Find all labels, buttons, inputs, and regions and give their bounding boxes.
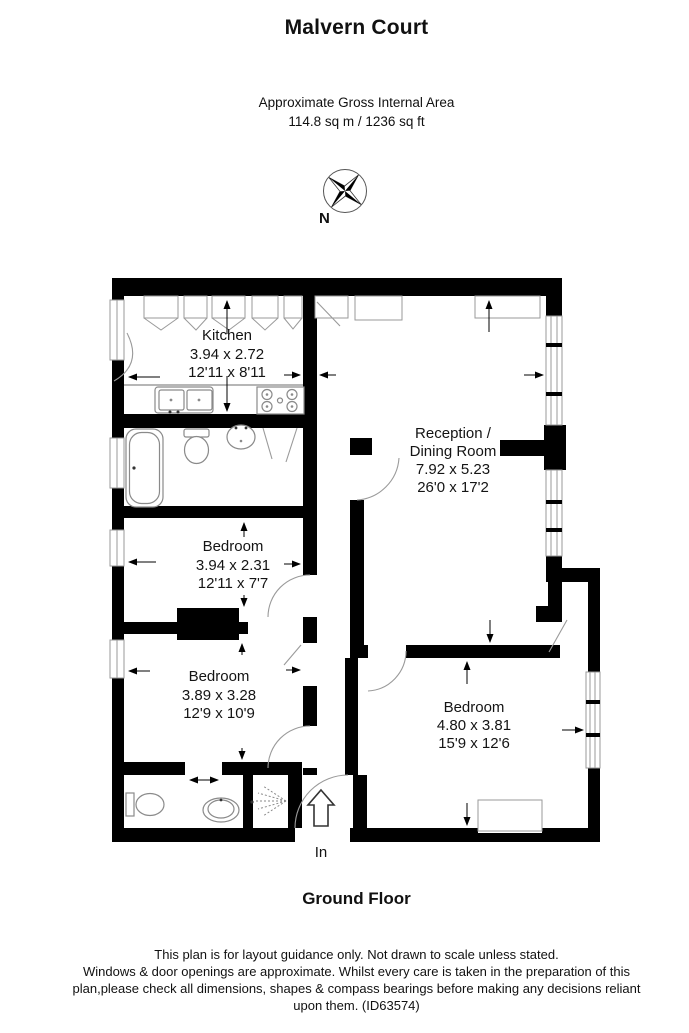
shower-room-fixtures (126, 786, 286, 822)
kitchen-fixtures (124, 385, 304, 414)
bedroom2-niche-leaf (284, 645, 301, 665)
toilet (185, 437, 209, 464)
svg-text:Bedroom: Bedroom (189, 668, 250, 685)
svg-text:4.80 x 3.81: 4.80 x 3.81 (437, 717, 511, 734)
bedroom3-window (586, 672, 600, 768)
reception-door-arc (357, 458, 399, 500)
svg-text:3.89 x 3.28: 3.89 x 3.28 (182, 687, 256, 704)
walls (112, 278, 600, 842)
svg-text:Bedroom: Bedroom (444, 699, 505, 716)
toilet-cistern (184, 429, 209, 437)
entry-label: In (315, 844, 328, 861)
toilet2-cistern (126, 793, 134, 816)
bathroom-fixtures (126, 425, 255, 507)
svg-text:3.94 x 2.72: 3.94 x 2.72 (190, 346, 264, 363)
disclaimer-rest: Windows & door openings are approximate.… (57, 963, 657, 1014)
svg-text:12'11 x 8'11: 12'11 x 8'11 (188, 364, 266, 381)
svg-text:Kitchen: Kitchen (202, 327, 252, 344)
svg-text:12'11 x 7'7: 12'11 x 7'7 (198, 575, 269, 592)
svg-text:12'9 x 10'9: 12'9 x 10'9 (183, 705, 255, 722)
bathroom-door-leaf2 (286, 428, 297, 462)
svg-text:26'0 x 17'2: 26'0 x 17'2 (417, 479, 489, 496)
svg-text:15'9 x 12'6: 15'9 x 12'6 (438, 735, 510, 752)
chimney-breast (177, 608, 239, 640)
svg-text:7.92 x 5.23: 7.92 x 5.23 (416, 461, 490, 478)
toilet2 (136, 794, 164, 816)
svg-text:Reception /: Reception / (415, 425, 492, 442)
disclaimer: This plan is for layout guidance only. N… (24, 946, 689, 1014)
basin (227, 425, 255, 449)
compass-north-label: N (319, 210, 330, 227)
bedroom1-door-arc (268, 575, 310, 617)
entry-arrow-icon (308, 790, 334, 826)
bedroom3-door-arc (368, 651, 406, 691)
room-label-reception: Reception / Dining Room 7.92 x 5.23 26'0… (410, 425, 497, 496)
bedroom2-door-arc (268, 726, 310, 768)
room-label-bedroom1: Bedroom 3.94 x 2.31 12'11 x 7'7 (196, 538, 270, 592)
floorplan-drawing: Kitchen 3.94 x 2.72 12'11 x 8'11 Recepti… (0, 0, 689, 1033)
disclaimer-line1: This plan is for layout guidance only. N… (57, 946, 657, 963)
bathroom-door-leaf (263, 428, 272, 459)
entrance-marker: In (308, 790, 334, 861)
bedroom3-bottom-bay (478, 800, 542, 831)
room-label-bedroom3: Bedroom 4.80 x 3.81 15'9 x 12'6 (437, 699, 511, 752)
floor-label: Ground Floor (24, 889, 689, 909)
svg-text:Bedroom: Bedroom (203, 538, 264, 555)
svg-text:3.94 x 2.31: 3.94 x 2.31 (196, 557, 270, 574)
svg-text:Dining Room: Dining Room (410, 443, 497, 460)
floorplan-page: Malvern Court Approximate Gross Internal… (0, 0, 689, 1033)
shower-spray (256, 786, 286, 816)
compass-icon: N (319, 170, 367, 228)
room-label-kitchen: Kitchen 3.94 x 2.72 12'11 x 8'11 (188, 327, 266, 381)
room-label-bedroom2: Bedroom 3.89 x 3.28 12'9 x 10'9 (182, 668, 256, 722)
